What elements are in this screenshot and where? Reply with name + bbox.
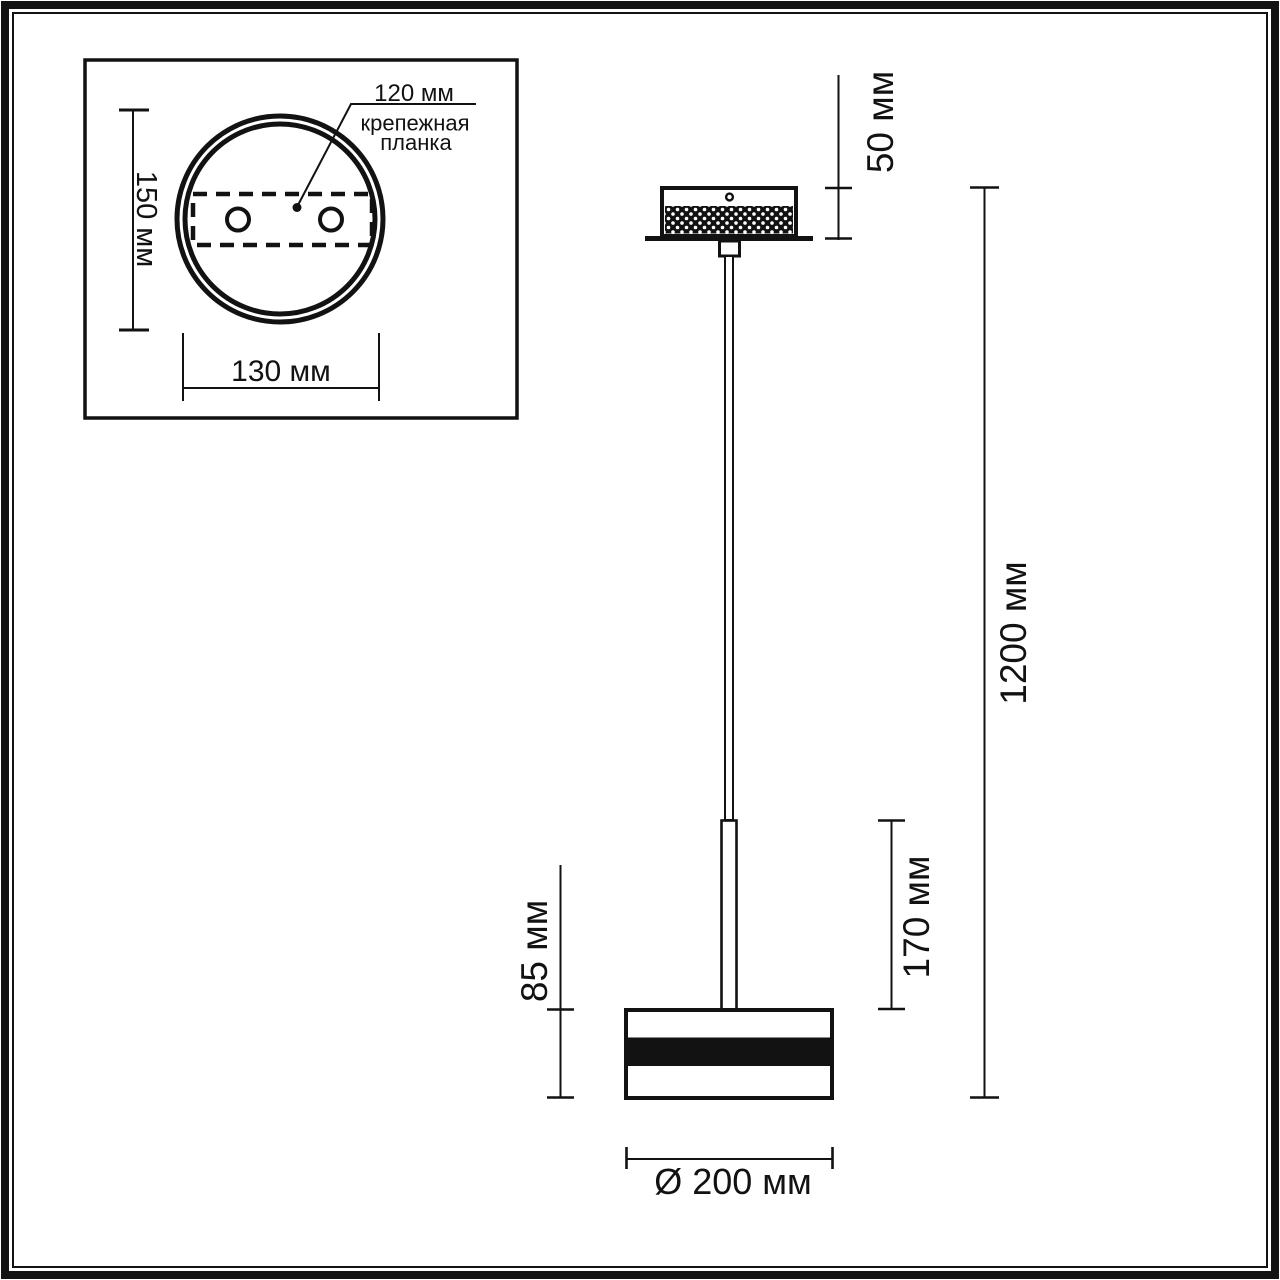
cord-connector [720, 241, 740, 256]
callout-text-line2: планка [380, 130, 452, 155]
dim-label-50: 50 мм [860, 71, 901, 173]
inset-panel: 150 мм 130 мм 120 мм крепежная планка [85, 60, 517, 418]
callout-point-marker [293, 203, 302, 212]
canopy-mesh-texture [665, 206, 793, 234]
dim-label-150: 150 мм [130, 171, 162, 267]
dim-label-130: 130 мм [231, 355, 331, 388]
drawing-svg: 150 мм 130 мм 120 мм крепежная планка [0, 0, 1280, 1280]
dim-label-85: 85 мм [514, 900, 555, 1002]
dim-label-1200: 1200 мм [993, 561, 1034, 704]
callout-value-120: 120 мм [374, 80, 454, 107]
dim-50: 50 мм [825, 71, 901, 240]
dim-1200: 1200 мм [970, 187, 1034, 1098]
pendant-lamp-dimension-drawing: 150 мм 130 мм 120 мм крепежная планка [0, 0, 1280, 1280]
suspension-cord [725, 256, 733, 820]
dim-label-diameter-200: Ø 200 мм [654, 1161, 812, 1202]
dim-85: 85 мм [514, 865, 574, 1098]
dim-diameter-200: Ø 200 мм [626, 1147, 833, 1202]
dim-170: 170 мм [878, 820, 937, 1009]
shade-accent-band [626, 1038, 832, 1067]
pendant-side-view [626, 188, 832, 1098]
canopy-screw-hole [726, 194, 733, 201]
suspension-rod [722, 821, 737, 1011]
dim-label-170: 170 мм [896, 856, 937, 979]
